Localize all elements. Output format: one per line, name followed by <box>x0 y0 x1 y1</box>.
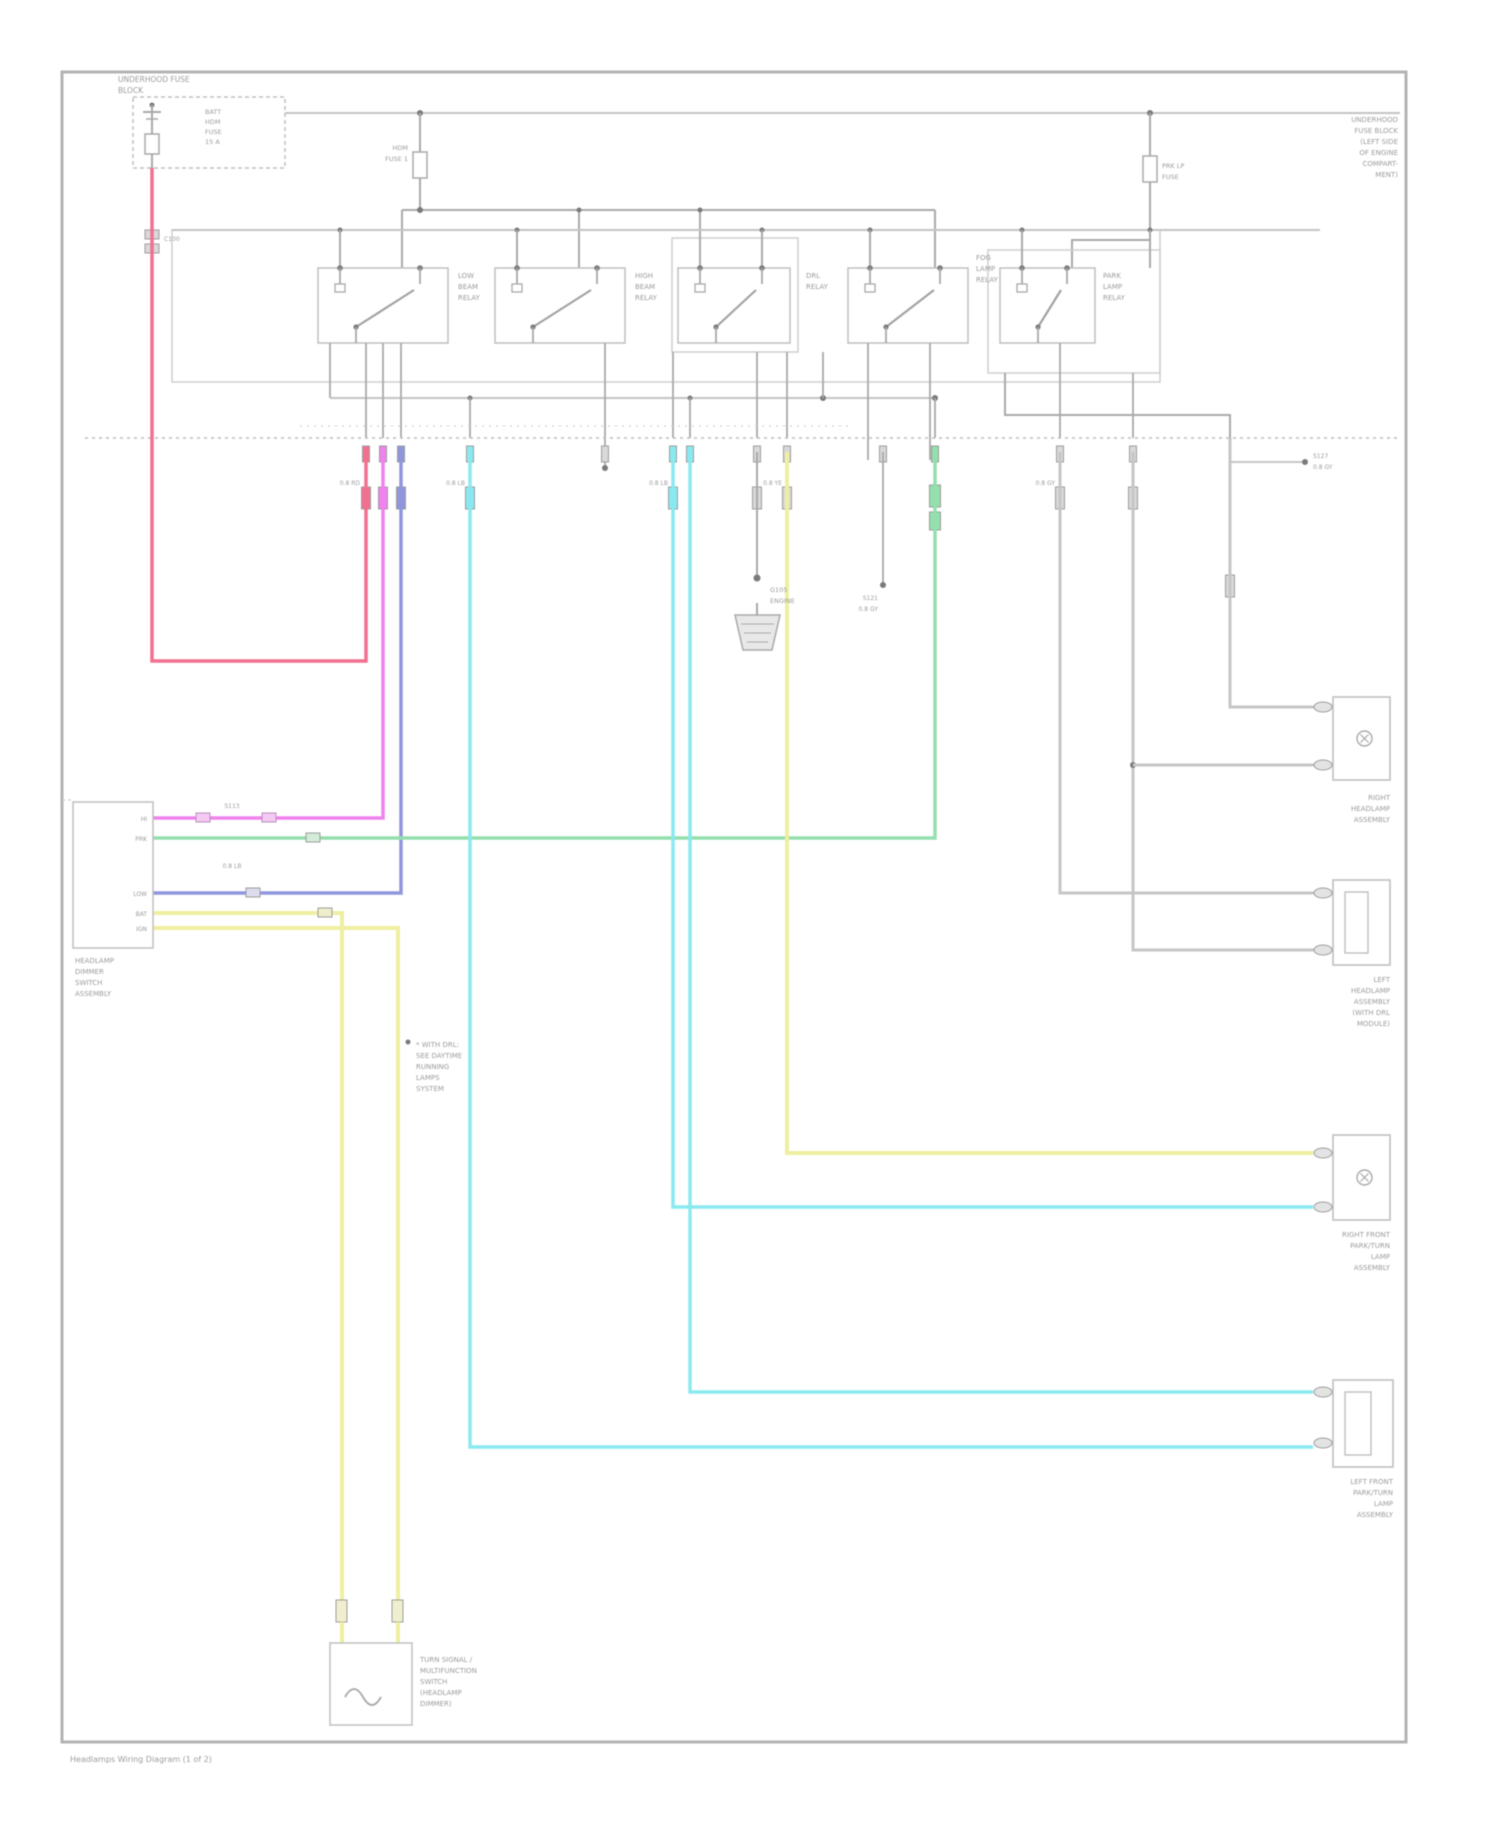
relay-contact <box>335 284 345 292</box>
terminated-pin <box>602 465 608 471</box>
component-label: ASSEMBLY <box>1354 1264 1391 1272</box>
wire-entry-connector <box>1314 702 1332 712</box>
wire-gauge-label: 0.8 LB <box>446 480 465 487</box>
wire-entry-connector <box>1314 760 1332 770</box>
inline-connector <box>262 813 276 822</box>
relay-label: LOW <box>458 272 474 280</box>
inline-connector <box>246 888 260 897</box>
wire-green <box>153 452 935 838</box>
fuse-label: FUSE <box>1162 173 1179 181</box>
bottom-box-label: (HEADLAMP <box>420 1689 462 1697</box>
relay-5 <box>1000 268 1095 343</box>
wire-yellow-a <box>153 913 342 1610</box>
relay-2 <box>495 268 625 343</box>
junction-dot <box>577 208 582 213</box>
bottom-box-label: SWITCH <box>420 1678 447 1686</box>
diagram-label: HDM <box>205 118 221 126</box>
wire-entry-connector <box>1314 1148 1332 1158</box>
note-text: RUNNING <box>416 1063 449 1071</box>
fuse-label: PRK LP <box>1162 162 1184 170</box>
fuse-icon <box>413 152 427 178</box>
component-label: LEFT <box>1373 976 1390 984</box>
component-label: HEADLAMP <box>1351 987 1390 995</box>
left-module-label: DIMMER <box>75 968 104 976</box>
module-pin-label: BAT <box>136 911 148 918</box>
relay-label: LAMP <box>1103 283 1122 291</box>
wiring-diagram: Headlamps Wiring Diagram (1 of 2)UNDERHO… <box>0 0 1500 1828</box>
module-pin-label: IGN <box>136 926 147 933</box>
right-edge-note: (LEFT SIDE <box>1360 138 1398 146</box>
inner-socket <box>1345 1392 1371 1455</box>
relay-label: DRL <box>806 272 820 280</box>
wire-gauge-label: 0.8 LB <box>223 863 242 870</box>
inner-socket <box>1345 892 1368 953</box>
fuse-label: FUSE 1 <box>385 155 408 163</box>
junction-dot <box>880 582 886 588</box>
wire-entry-connector <box>1314 1438 1332 1448</box>
left-module-label: ASSEMBLY <box>75 990 112 998</box>
diagram-label: 15 A <box>205 138 220 146</box>
component-label: MODULE) <box>1357 1020 1390 1028</box>
headlamp-left-box <box>1333 880 1390 965</box>
relay-switch-arm <box>716 290 756 327</box>
component-label: RIGHT <box>1368 794 1391 802</box>
component-label: LAMP <box>1374 1500 1393 1508</box>
inline-connector <box>306 833 320 842</box>
relay-1 <box>318 268 448 343</box>
relay-switch-arm <box>1038 290 1061 327</box>
wire-entry-connector <box>1314 945 1332 955</box>
right-edge-note: COMPART- <box>1362 160 1398 168</box>
fuse2-out <box>1072 182 1150 268</box>
relay-contact <box>1017 284 1027 292</box>
fuse-block-title: BLOCK <box>118 86 144 95</box>
bottom-box-label: MULTIFUNCTION <box>420 1667 477 1675</box>
diagram-label: FUSE <box>205 128 222 136</box>
wire-gauge-label: 0.8 RD <box>340 480 361 487</box>
junction-dot <box>698 208 703 213</box>
ground-label: ENGINE <box>770 597 795 605</box>
fuse-block-title: UNDERHOOD FUSE <box>118 75 190 84</box>
wire-blue <box>153 452 401 893</box>
right-edge-note: UNDERHOOD <box>1351 116 1398 124</box>
relay-label: BEAM <box>458 283 478 291</box>
wire-red <box>152 168 366 661</box>
left-module-label: HEADLAMP <box>75 957 114 965</box>
relay-label: RELAY <box>976 276 999 284</box>
module-pin-label: HI <box>141 816 148 823</box>
note-text: * WITH DRL: <box>416 1041 459 1049</box>
wire-gauge-label: 0.8 GY <box>1313 464 1333 471</box>
module-pin-label: LOW <box>133 891 147 898</box>
relay-label: RELAY <box>635 294 658 302</box>
splice-label: S127 <box>1313 453 1328 460</box>
component-label: LAMP <box>1371 1253 1390 1261</box>
drl-relay-box <box>672 238 798 352</box>
fuse-icon <box>145 134 159 154</box>
wire-cyan-2 <box>673 452 1313 1207</box>
relay-label: PARK <box>1103 272 1121 280</box>
component-label: HEADLAMP <box>1351 805 1390 813</box>
diagram-label: BATT <box>205 108 221 116</box>
bottom-switch-box <box>330 1643 412 1725</box>
page-footer: Headlamps Wiring Diagram (1 of 2) <box>70 1755 212 1764</box>
note-text: LAMPS <box>416 1074 440 1082</box>
wire-gray-a <box>1060 452 1333 893</box>
component-label: (WITH DRL <box>1352 1009 1390 1017</box>
left-module-label: SWITCH <box>75 979 102 987</box>
relay-4 <box>848 268 968 343</box>
wiring-diagram-page: Headlamps Wiring Diagram (1 of 2)UNDERHO… <box>0 0 1500 1828</box>
relay-label: RELAY <box>1103 294 1126 302</box>
page-border <box>62 72 1406 1742</box>
headlamp-right-box <box>1333 697 1390 780</box>
relay-label: HIGH <box>635 272 653 280</box>
switch-squiggle-icon <box>345 1689 381 1705</box>
inline-connector <box>392 1600 403 1622</box>
splice-label: S113 <box>224 803 239 810</box>
wire-gauge-label: 0.8 YE <box>763 480 782 487</box>
bottom-box-label: DIMMER) <box>420 1700 452 1708</box>
wire-gauge-label: 0.8 GY <box>859 606 879 613</box>
component-label: PARK/TURN <box>1353 1489 1393 1497</box>
note-text: SEE DAYTIME <box>416 1052 462 1060</box>
relay-3 <box>678 268 790 343</box>
relay-enclosure <box>172 230 1160 382</box>
relay-switch-arm <box>886 290 934 327</box>
relay-contact <box>512 284 522 292</box>
note-marker-dot <box>406 1040 411 1045</box>
relay-contact <box>695 284 705 292</box>
component-label: LEFT FRONT <box>1350 1478 1393 1486</box>
wire-yellow-right <box>787 452 1313 1153</box>
splice-label: S121 <box>863 595 878 602</box>
component-label: ASSEMBLY <box>1354 998 1391 1006</box>
inline-connector <box>336 1600 347 1622</box>
wire-gauge-label: 0.8 LB <box>649 480 668 487</box>
right-edge-note: MENT) <box>1375 171 1398 179</box>
relay-label: BEAM <box>635 283 655 291</box>
wire-gray-b <box>1133 452 1333 950</box>
component-label: ASSEMBLY <box>1354 816 1391 824</box>
wire-gauge-label: 0.8 GY <box>1036 480 1056 487</box>
note-text: SYSTEM <box>416 1085 444 1093</box>
ground-dot <box>754 575 761 582</box>
wire-magenta <box>153 452 383 818</box>
component-label: RIGHT FRONT <box>1342 1231 1391 1239</box>
inline-connector <box>318 908 332 917</box>
wire-entry-connector <box>1314 1202 1332 1212</box>
ground-label: G105 <box>770 586 787 594</box>
module-pin-label: PRK <box>135 836 148 843</box>
relay-switch-arm <box>533 290 591 327</box>
component-label: PARK/TURN <box>1350 1242 1390 1250</box>
relay-label: RELAY <box>806 283 829 291</box>
fuse-icon <box>1143 156 1157 182</box>
fuse-label: HDM <box>392 144 408 152</box>
relay-label: LAMP <box>976 265 995 273</box>
component-label: ASSEMBLY <box>1357 1511 1394 1519</box>
connector-pin <box>602 446 609 462</box>
wire-entry-connector <box>1314 888 1332 898</box>
right-edge-note: OF ENGINE <box>1359 149 1398 157</box>
junction-dot <box>417 207 423 213</box>
bottom-box-label: TURN SIGNAL / <box>419 1656 473 1664</box>
inline-connector <box>196 813 210 822</box>
wire-yellow-b <box>153 928 398 1610</box>
relay-label: RELAY <box>458 294 481 302</box>
relay-switch-arm <box>356 290 414 327</box>
relay-contact <box>865 284 875 292</box>
wire-gray-c <box>1230 438 1333 707</box>
park-lamp-left-box <box>1333 1380 1393 1467</box>
right-edge-note: FUSE BLOCK <box>1354 127 1398 135</box>
junction-dot <box>1302 459 1308 465</box>
relay-label: FOG <box>976 254 991 262</box>
wire-entry-connector <box>1314 1387 1332 1397</box>
park-lamp-right-box <box>1333 1135 1390 1220</box>
